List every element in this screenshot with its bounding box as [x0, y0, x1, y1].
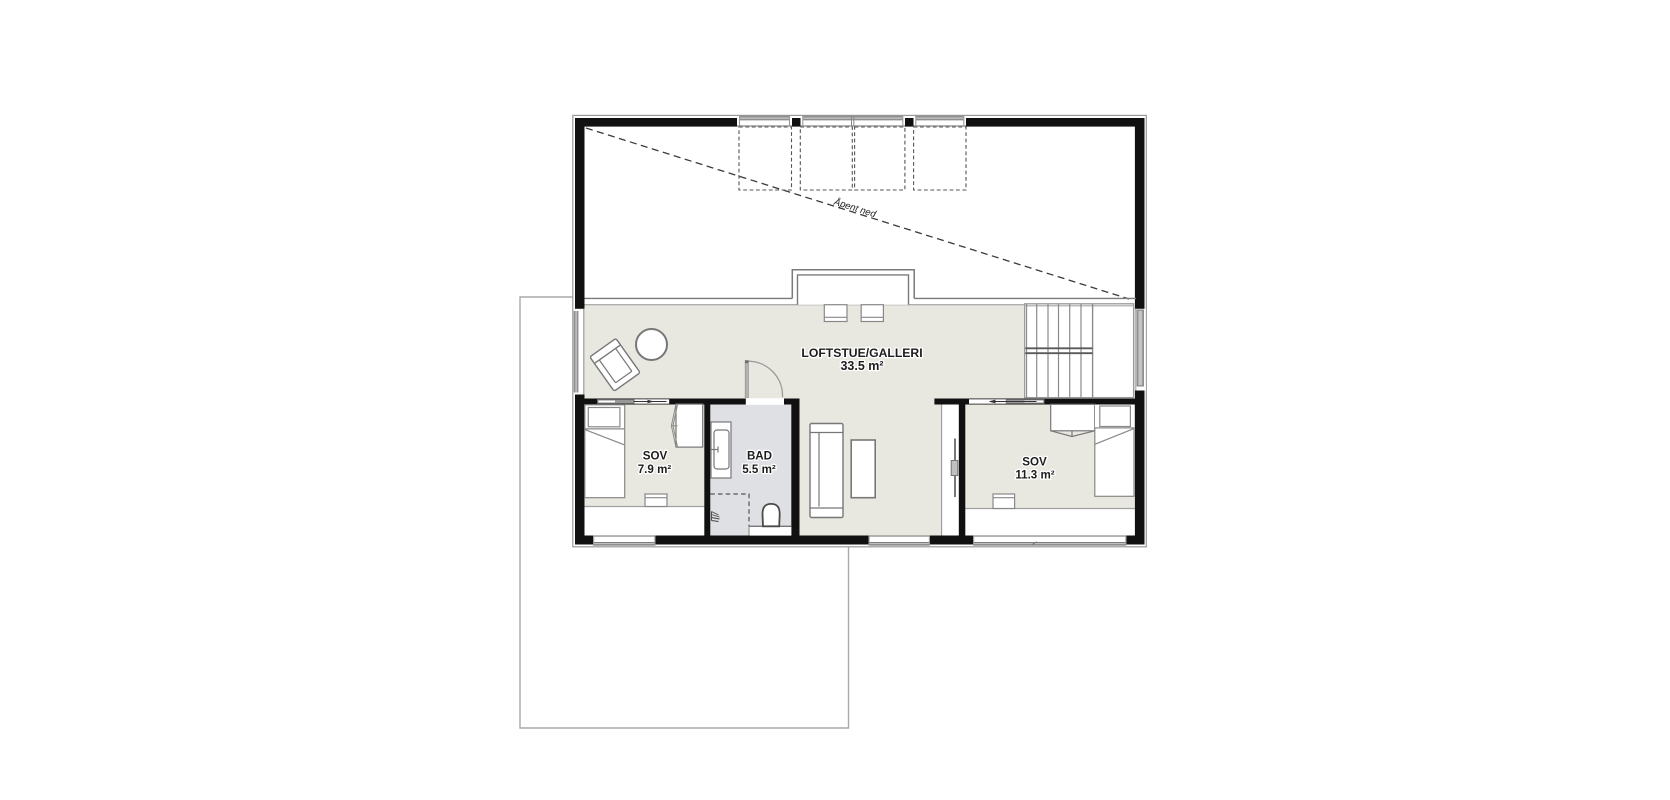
svg-text:7.9 m²: 7.9 m² — [638, 463, 672, 476]
svg-text:SOV: SOV — [1022, 455, 1047, 468]
svg-text:LOFTSTUE/GALLERI: LOFTSTUE/GALLERI — [801, 346, 922, 360]
svg-text:33.5 m²: 33.5 m² — [840, 359, 883, 373]
svg-text:5.5 m²: 5.5 m² — [742, 463, 776, 476]
svg-text:11.3 m²: 11.3 m² — [1015, 469, 1054, 482]
svg-text:SOV: SOV — [643, 450, 668, 463]
svg-text:BAD: BAD — [747, 450, 772, 463]
